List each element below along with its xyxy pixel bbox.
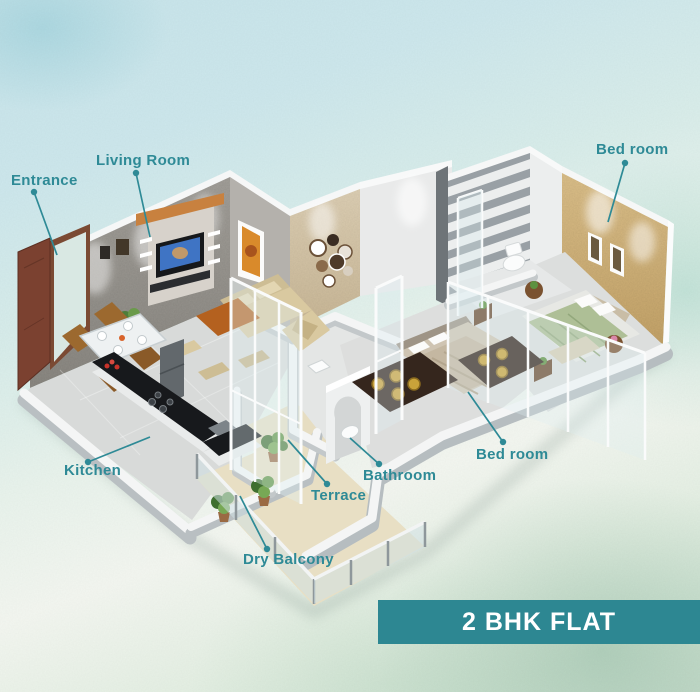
bedroom-bottom-leader-dot (500, 439, 506, 445)
living-room-leader-dot (133, 170, 139, 176)
switch-plate (116, 239, 129, 255)
hob-burner (167, 399, 173, 405)
floor-plan-poster: Entrance Living Room Bed room Kitchen Te… (0, 0, 700, 692)
label-kitchen: Kitchen (64, 462, 121, 479)
label-entrance: Entrance (11, 172, 78, 189)
switch-plate (100, 246, 110, 259)
title-banner: 2 BHK FLAT (378, 600, 700, 644)
bedroom-top-leader-dot (622, 160, 628, 166)
floor-plan-illustration (0, 0, 700, 692)
centerpiece (119, 335, 125, 341)
corridor-glass (376, 276, 402, 434)
label-living-room: Living Room (96, 152, 190, 169)
hob-burner (155, 392, 161, 398)
label-terrace: Terrace (311, 487, 366, 504)
hob-burner (160, 406, 167, 413)
living-terrace-glass (231, 278, 301, 504)
label-bedroom-bottom: Bed room (476, 446, 548, 463)
flower-vase (105, 364, 110, 369)
hob-burner (149, 399, 156, 406)
label-dry-balcony: Dry Balcony (243, 551, 334, 568)
entrance-leader-dot (31, 189, 37, 195)
label-bedroom-top: Bed room (596, 141, 668, 158)
banner-text: 2 BHK FLAT (462, 608, 616, 637)
label-bathroom: Bathroom (363, 467, 436, 484)
